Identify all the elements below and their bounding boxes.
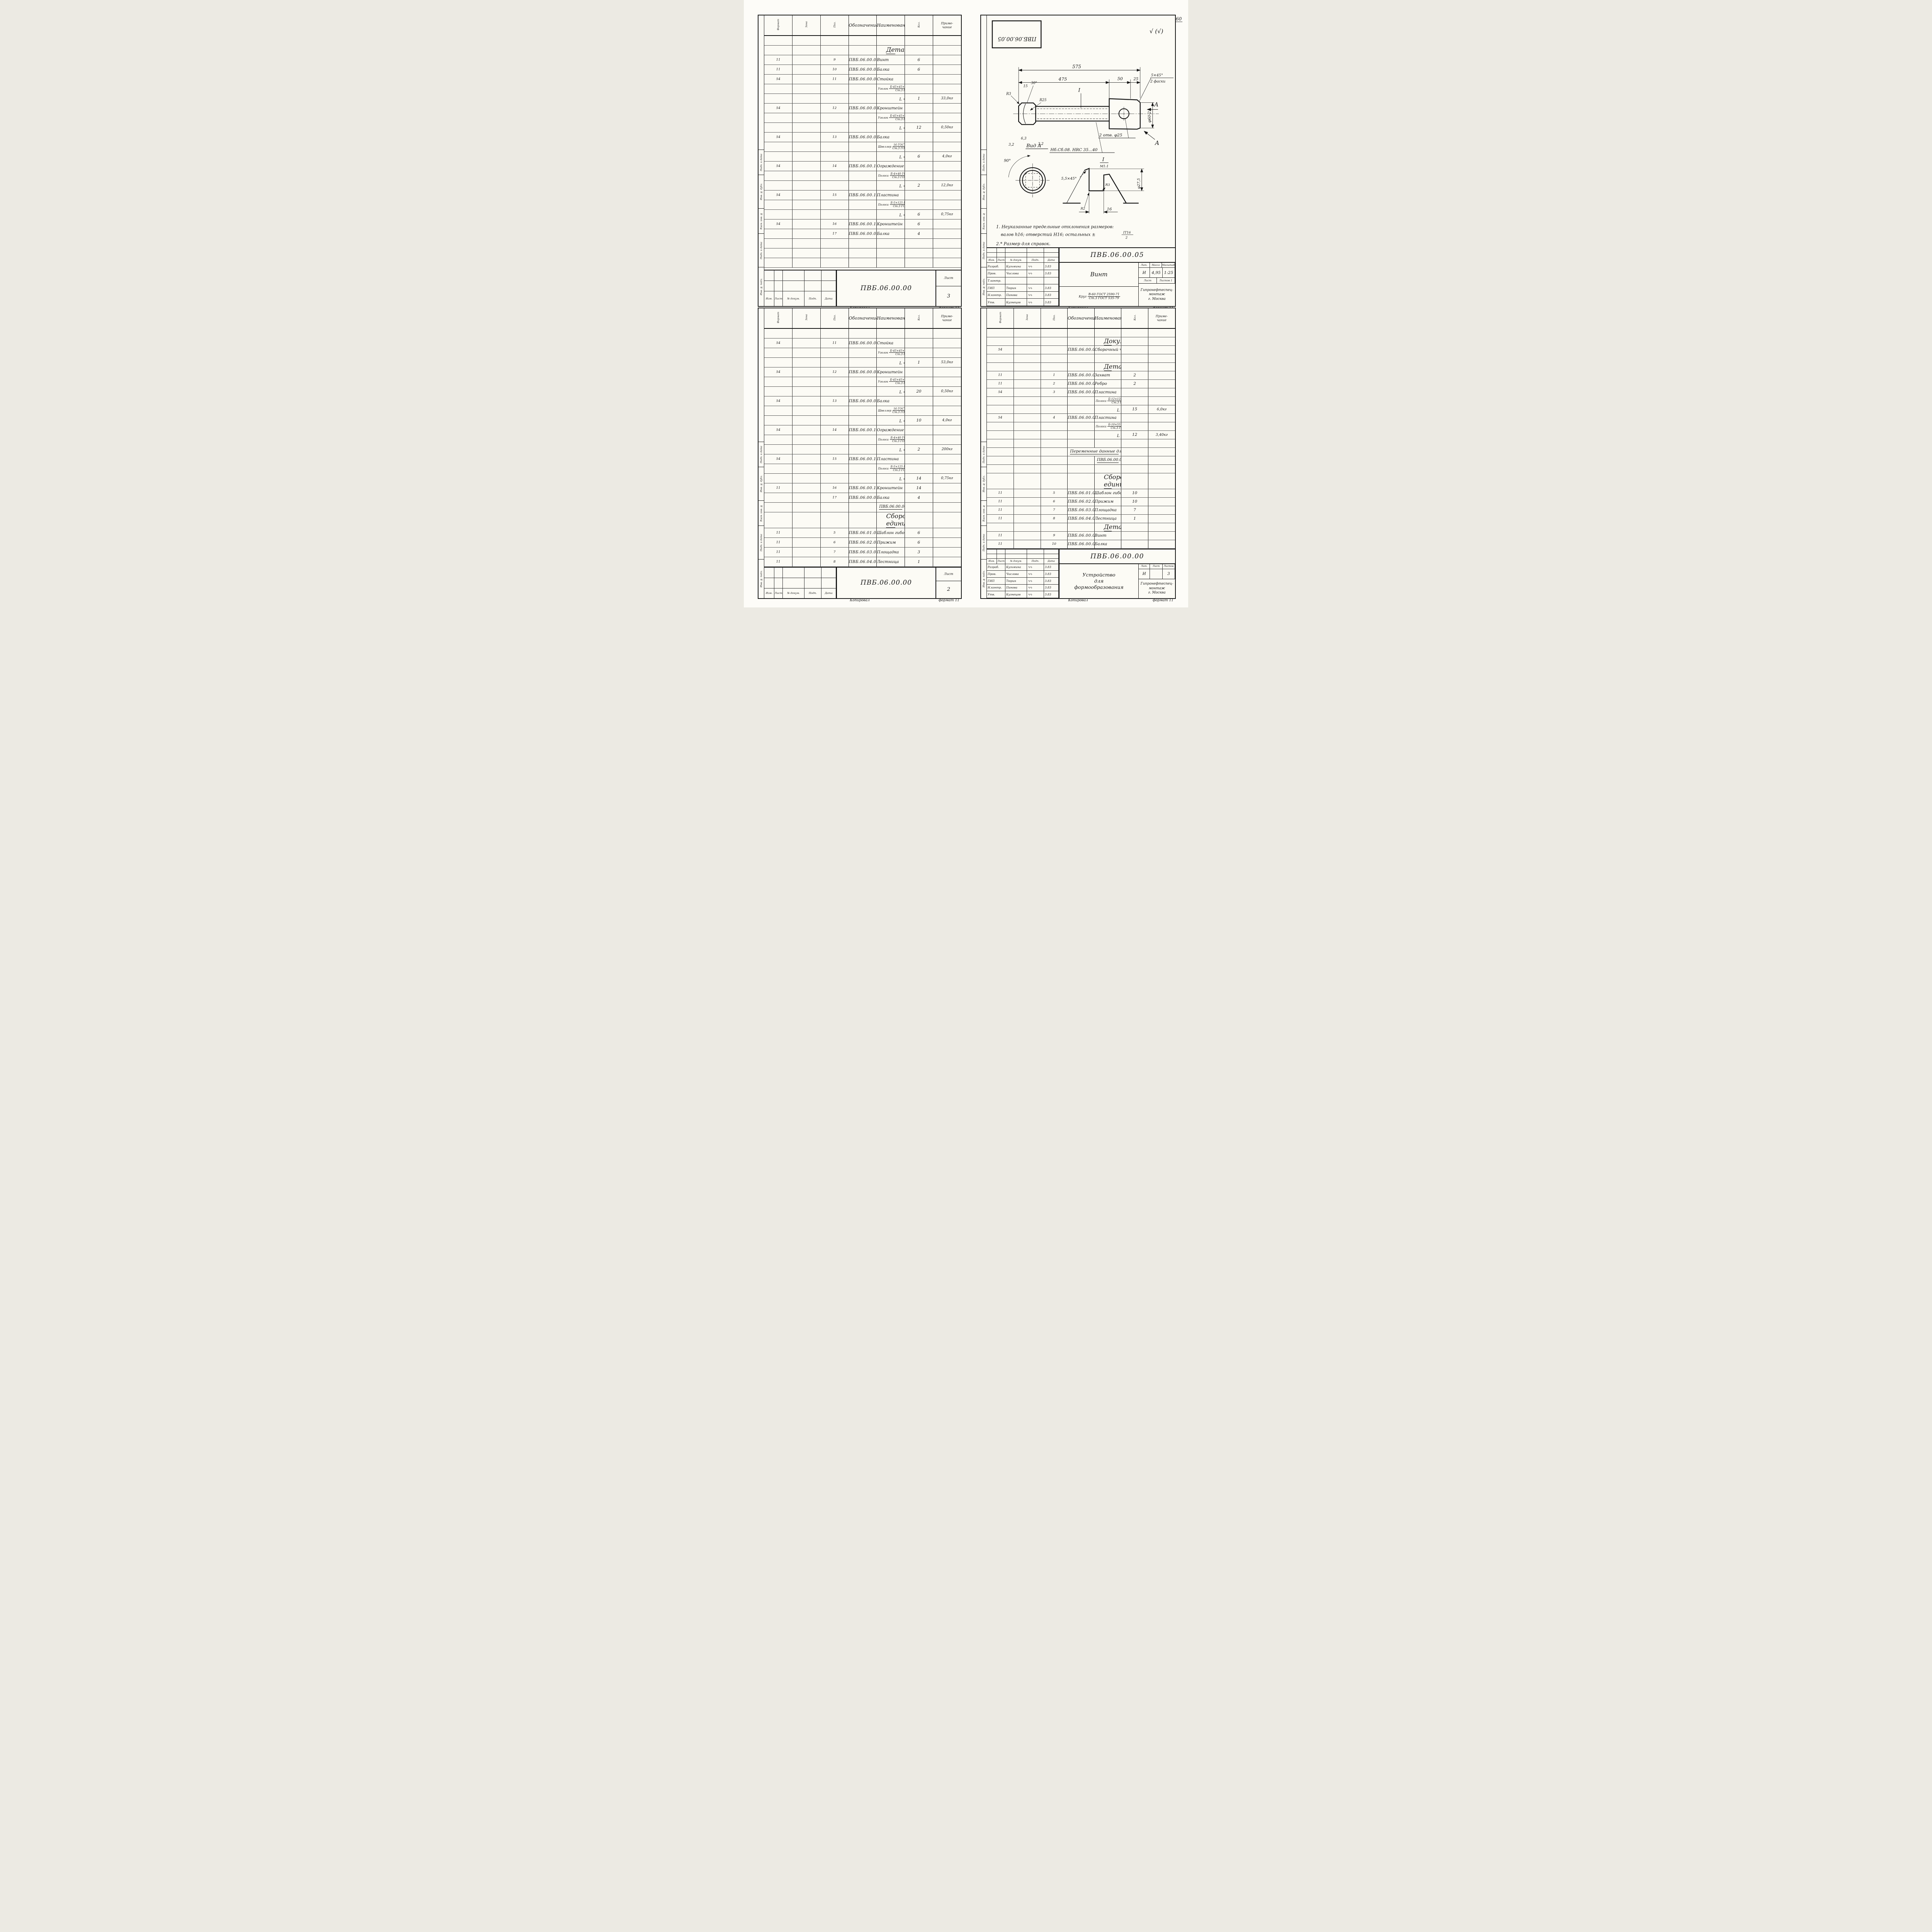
title-block-header-row: Изм.Лист№ докум.Подп.Дата	[987, 257, 1059, 263]
label-r2: R2	[1080, 207, 1085, 211]
cell-note	[933, 328, 961, 338]
spec-row: 5415ПВБ.06.00.11Пластина	[764, 454, 961, 464]
cell-pos: 15	[820, 454, 849, 464]
cell-pos: 8	[820, 557, 849, 566]
section-heading: Сборочные единицы	[1104, 473, 1112, 489]
margin-stamp-label: Подп. и дата	[760, 446, 763, 463]
cell-designation	[849, 406, 877, 415]
column-header-c5 bt: Кол.	[1121, 308, 1148, 328]
cell-format: 54	[764, 132, 793, 142]
material-fraction: Б-10×55 ГОСТ 103-76Ст.3 ГОСТ 535-79	[1107, 423, 1121, 430]
cell-zone	[793, 473, 821, 483]
margin-stamp-cell: Инв. № дубл.	[759, 467, 764, 500]
holes-note: 2 отв. φ25	[1099, 133, 1122, 138]
cell-designation	[849, 113, 877, 122]
margin-stamp-label: Взам. инв. №	[760, 213, 763, 230]
cell-name: Сборочные единицы	[1094, 473, 1121, 489]
lit-mass-scale-headers: Лит.МассаМасштаб	[1139, 263, 1175, 268]
material-fraction: Б-45×45×5 ГОСТ 8509-72Ст.3 ГОСТ 535-79	[889, 349, 905, 356]
length-value: L = 150	[877, 390, 905, 395]
cell-note	[1148, 531, 1175, 540]
cell-format: 11	[764, 55, 793, 65]
cell-name: Кронштейн	[877, 483, 905, 493]
column-header-name: Наименование	[877, 15, 905, 36]
cell-qty	[905, 74, 933, 84]
cell-format	[987, 362, 1014, 371]
column-header-note-line: чание	[933, 26, 961, 29]
material-steel: Ст.3 ГОСТ 535-79	[892, 176, 905, 179]
material-name: Полоса	[878, 174, 888, 177]
cell-zone	[793, 45, 821, 55]
footer-sheet-label: Лист	[936, 568, 961, 581]
revision-grid-cell	[774, 568, 783, 578]
cell-designation	[849, 328, 877, 338]
cell-pos: 10	[820, 65, 849, 74]
margin-stamp-label: Инв. № подл.	[760, 278, 763, 295]
cell-zone	[793, 537, 821, 547]
cell-zone	[1014, 328, 1041, 337]
material-cell: КругВ-60 ГОСТ 2590-71Ст.3 ГОСТ 535-79	[1060, 286, 1138, 306]
cell-pos: 11	[820, 338, 849, 348]
label-90deg: 90°	[1004, 159, 1011, 163]
note-frac-bot: 2	[1125, 236, 1128, 240]
staff-role: ГИП	[987, 578, 1005, 585]
cell-name: УголокБ-45×45×5 ГОСТ 8509-72Ст.3 ГОСТ 53…	[877, 348, 905, 357]
spare-cell	[1027, 253, 1044, 257]
lit-mass-scale-values: И3	[1139, 569, 1175, 579]
cell-note	[933, 528, 961, 537]
spare-cell	[1044, 248, 1059, 253]
cell-note	[933, 258, 961, 267]
cell-name: L = 9720	[877, 94, 905, 103]
cell-note	[933, 502, 961, 512]
spare-cell	[987, 253, 997, 257]
cell-format	[987, 337, 1014, 345]
cell-zone	[1014, 345, 1041, 354]
staff-name: Кузьмина	[1005, 263, 1027, 270]
material-steel: Ст.3 ГОСТ 535-79	[895, 118, 905, 121]
cell-pos: 17	[820, 229, 849, 238]
spec-row: УголокБ-45×45×5 ГОСТ 8509-72Ст.3 ГОСТ 53…	[764, 377, 961, 386]
length-value: L = 150	[877, 213, 905, 218]
margin-stamp-cell: Взам. инв. №	[981, 500, 986, 526]
margin-stamp-label: Инв. № подл.	[760, 570, 763, 587]
material-spec: КругВ-60 ГОСТ 2590-71Ст.3 ГОСТ 535-79	[1078, 293, 1120, 300]
cell-name: L = 150	[877, 122, 905, 132]
cell-designation	[849, 94, 877, 103]
cell-pos: 17	[820, 493, 849, 502]
cell-format	[987, 439, 1014, 447]
cell-format	[764, 444, 793, 454]
cell-qty: 6	[905, 151, 933, 161]
cell-zone	[793, 464, 821, 473]
cell-note: 4,0кг	[933, 415, 961, 425]
spec-row: L = 156702200кг	[764, 444, 961, 454]
cell-pos	[820, 171, 849, 180]
cell-pos: 13	[820, 132, 849, 142]
cell-note	[933, 171, 961, 180]
column-header-label: Зона	[1026, 314, 1029, 320]
cell-zone	[1014, 489, 1041, 497]
page-number: 60	[1175, 16, 1182, 22]
margin-stamp-label: Взам. инв. №	[983, 505, 985, 522]
staff-role: ГИП	[987, 284, 1005, 292]
cell-qty: 14	[905, 483, 933, 493]
cell-note	[1148, 523, 1175, 531]
cell-name: Детали	[1094, 362, 1121, 371]
margin-stamp-cell: Подп. и дата	[981, 150, 986, 175]
cell-pos: 14	[820, 425, 849, 435]
staff-role: Н.контр.	[987, 585, 1005, 592]
cell-designation	[1068, 396, 1095, 405]
spec-row: L = 28064,0кг	[764, 151, 961, 161]
length-value: L = 280	[877, 419, 905, 423]
spec-row: L = 15060,75кг	[764, 209, 961, 219]
column-header-note-line: Приме-	[933, 315, 961, 318]
staff-date: 3.83	[1044, 284, 1059, 292]
cell-format	[764, 84, 793, 94]
title-block-right: ПВБ.06.00.00Устройстводляформообразовани…	[1059, 549, 1175, 599]
cell-note	[933, 132, 961, 142]
cell-zone	[793, 122, 821, 132]
cell-zone	[793, 328, 821, 338]
cell-pos	[820, 435, 849, 444]
cell-pos	[1041, 473, 1068, 489]
cell-qty: 1	[1121, 514, 1148, 523]
cell-format	[987, 447, 1014, 456]
cell-name: Балка	[877, 132, 905, 142]
cell-name: Захват	[1094, 371, 1121, 379]
cell-format: 11	[987, 540, 1014, 548]
material-steel: Ст.3 ГОСТ 535-79	[895, 382, 905, 385]
cell-format	[987, 422, 1014, 430]
cell-qty	[1121, 464, 1148, 473]
cell-name: Пластина	[877, 190, 905, 200]
spare-cell	[1005, 549, 1027, 554]
spec-row: L = 9720133,0кг	[764, 94, 961, 103]
cell-qty	[905, 377, 933, 386]
cell-pos	[820, 180, 849, 190]
cell-pos	[820, 386, 849, 396]
column-header-note-line: Приме-	[1148, 315, 1175, 318]
lms-value: 1:25	[1163, 268, 1175, 278]
cell-qty: 2	[905, 444, 933, 454]
cell-zone	[793, 483, 821, 493]
sheet-label: Лист	[1139, 278, 1157, 284]
lms-header: Лист	[1150, 564, 1162, 569]
margin-stamp-cell: Взам. инв. №	[759, 208, 764, 233]
cell-designation: ПВБ.06.00.06	[1068, 540, 1095, 548]
cell-qty	[905, 103, 933, 113]
cell-format: 54	[764, 454, 793, 464]
cell-name: Лестница	[1094, 514, 1121, 523]
rev-label: Подп.	[1027, 257, 1044, 263]
cell-note	[933, 248, 961, 258]
cell-name	[877, 328, 905, 338]
cell-qty: 6	[905, 528, 933, 537]
cell-designation	[849, 180, 877, 190]
assembly-title-line: формообразования	[1074, 584, 1123, 590]
footer-sheet-number: 2	[936, 581, 961, 598]
margin-stamp-cell: Подп. и дата	[981, 233, 986, 267]
title-block-right: ПВБ.06.00.05ВинтКругВ-60 ГОСТ 2590-71Ст.…	[1059, 248, 1175, 306]
cell-format: 54	[987, 388, 1014, 396]
spec-frame: ФорматЗонаПоз.ОбозначениеНаименованиеКол…	[764, 308, 961, 598]
staff-date: 3.83	[1044, 591, 1059, 598]
cell-note	[933, 338, 961, 348]
cell-name	[877, 36, 905, 45]
cell-zone	[793, 377, 821, 386]
length-value: L = 15120	[877, 361, 905, 366]
cell-pos: 13	[820, 396, 849, 406]
spare-cell	[997, 549, 1005, 554]
cell-qty: 6	[905, 537, 933, 547]
column-header-label: Кол.	[1133, 315, 1136, 320]
revision-grid-cell	[783, 568, 804, 578]
cell-format: 11	[764, 528, 793, 537]
spec-row: 17ПВБ.06.00.06-01Балка4	[764, 493, 961, 502]
cell-zone	[793, 65, 821, 74]
cell-designation: ПВБ.06.00.05	[849, 55, 877, 65]
cell-pos: 16	[820, 483, 849, 493]
cell-variant-heading: Переменные данные для исполнений	[1068, 447, 1121, 456]
margin-stamp-cell: Подп. и дата	[759, 233, 764, 267]
column-header-c5 bt: Кол.	[905, 15, 933, 36]
margin-stamp-cell: Подп. и дата	[759, 526, 764, 559]
column-header-note: Приме-чание	[933, 308, 961, 328]
cell-note	[1148, 514, 1175, 523]
note-2: 2.* Размер для справок.	[996, 241, 1050, 246]
cell-note	[1148, 422, 1175, 430]
cell-pos	[1041, 354, 1068, 362]
cell-note	[933, 238, 961, 248]
cell-pos: 6	[1041, 497, 1068, 506]
cell-pos: 3	[1041, 388, 1068, 396]
cell-designation	[849, 151, 877, 161]
rev-label: Лист	[997, 257, 1005, 263]
cell-zone	[1014, 362, 1041, 371]
staff-role: Т.контр.	[987, 277, 1005, 285]
cell-pos	[1041, 362, 1068, 371]
spec-row: 117ПВБ.06.03.00Площадка3	[764, 547, 961, 557]
cell-name: Ребро	[1094, 379, 1121, 388]
material-name: Полоса	[1096, 399, 1106, 403]
margin-stamp-cell: Инв. № подл.	[759, 267, 764, 306]
revision-grid-cell	[804, 270, 821, 281]
staff-date: 3.83	[1044, 578, 1059, 585]
cell-designation: ПВБ.06.04.00	[1068, 514, 1095, 523]
cell-pos	[820, 464, 849, 473]
cell-designation: ПВБ.06.00.00СБ	[1068, 345, 1095, 354]
cell-qty: 10	[1121, 497, 1148, 506]
view-a-label: Вид А	[1026, 143, 1041, 148]
margin-stamp-label: Подп. и дата	[983, 154, 985, 171]
cell-note	[933, 435, 961, 444]
cell-format: 11	[764, 557, 793, 566]
material-fraction: Б-5×125 ГОСТ 103-76Ст.3 ГОСТ 535-79	[890, 465, 905, 472]
cell-pos	[820, 348, 849, 357]
staff-role: Н.контр.	[987, 292, 1005, 299]
cell-note: 0,50кг	[933, 122, 961, 132]
cell-note	[1148, 464, 1175, 473]
cell-qty	[905, 171, 933, 180]
cell-qty	[1121, 456, 1148, 464]
cell-name: Балка	[877, 229, 905, 238]
cell-designation	[849, 171, 877, 180]
cell-zone	[1014, 430, 1041, 439]
below-frame-labels: Копировал формат 11	[981, 599, 1175, 604]
cell-name	[1094, 354, 1121, 362]
cell-name: L = 450	[1094, 430, 1121, 439]
cell-format	[764, 171, 793, 180]
spec-row: 5411ПВБ.06.00.07-01Стойка	[764, 74, 961, 84]
margin-stamp-strip: Подп. и датаИнв. № дубл.Взам. инв. №Подп…	[981, 15, 987, 306]
section-heading: Документация	[1104, 337, 1112, 345]
title-block-middle: Устройстводляформообразования	[1060, 564, 1138, 599]
cell-format	[987, 473, 1014, 489]
title-block-header-row: Изм.Лист№ докум.Подп.Дата	[987, 559, 1059, 564]
cell-zone	[1014, 447, 1041, 456]
footer-sheet-cell: Лист3	[935, 270, 961, 306]
cell-designation	[849, 348, 877, 357]
cell-format: 11	[987, 497, 1014, 506]
cell-format: 11	[764, 547, 793, 557]
cell-designation: ПВБ.06.00.10	[849, 425, 877, 435]
cell-name: L = 150	[877, 473, 905, 483]
margin-stamp-label: Подп. и дата	[760, 154, 763, 171]
cell-note	[933, 454, 961, 464]
spec-row: Детали	[987, 523, 1175, 531]
cell-note: 0,75кг	[933, 209, 961, 219]
material-fraction: Б-45×45×5 ГОСТ 8509-72Ст.3 ГОСТ 535-79	[889, 85, 905, 92]
rev-label: Лист	[997, 559, 1005, 564]
cell-qty	[1121, 447, 1148, 456]
spec-row: L = 450123,40кг	[987, 430, 1175, 439]
spec-table-body: 5411ПВБ.06.00.07СтойкаУголокБ-45×45×5 ГО…	[764, 328, 961, 566]
rev-label: № докум.	[1005, 257, 1027, 263]
line	[1085, 193, 1089, 207]
cell-qty	[1121, 328, 1148, 337]
cell-format	[764, 377, 793, 386]
revision-grid-cell	[783, 578, 804, 588]
assembly-title-line: для	[1094, 578, 1104, 584]
organization-cell: Гипронефтеспец-монтажг. Москва	[1139, 284, 1175, 306]
margin-stamp-label: Инв. № дубл.	[983, 475, 985, 492]
margin-stamp-cell: Подп. и дата	[981, 442, 986, 467]
margin-stamp-cell: Подп. и дата	[981, 526, 986, 559]
staff-role: Пров.	[987, 270, 1005, 277]
note-1b: валов h16; отверстий Н16; остальных ±	[1001, 232, 1095, 237]
cell-zone	[793, 94, 821, 103]
material-fraction: Б-12×125 ГОСТ 103-76Ст.3 ГОСТ 535-79	[1107, 398, 1121, 404]
margin-stamp-cell: Инв. № дубл.	[981, 467, 986, 500]
spec-row: L = 150140,75кг	[764, 473, 961, 483]
cell-pos	[1041, 345, 1068, 354]
cell-note	[1148, 328, 1175, 337]
dim-25: 25	[1133, 77, 1138, 82]
column-header-label: Зона	[805, 314, 808, 320]
cell-pos	[1041, 328, 1068, 337]
cell-designation: ПВБ.06.00.08	[849, 367, 877, 377]
cell-zone	[1014, 422, 1041, 430]
cell-qty: 3	[905, 547, 933, 557]
cell-qty	[905, 238, 933, 248]
cell-zone	[793, 113, 821, 122]
section-heading: Детали	[1104, 523, 1112, 531]
spec-table-body: Детали119ПВБ.06.00.05Винт61110ПВБ.06.00.…	[764, 36, 961, 267]
assembly-title-cell: Устройстводляформообразования	[1060, 564, 1138, 599]
spec-row: 117ПВБ.06.03.00Площадка7	[987, 506, 1175, 514]
cell-qty: 2	[905, 180, 933, 190]
cell-qty	[905, 132, 933, 142]
cell-qty	[905, 45, 933, 55]
staff-role: Утв.	[987, 299, 1005, 306]
margin-stamp-label: Подп. и дата	[983, 446, 985, 463]
spare-cell	[1005, 248, 1027, 253]
cell-format: 54	[764, 425, 793, 435]
material-spec: УголокБ-45×45×5 ГОСТ 8509-72Ст.3 ГОСТ 53…	[877, 85, 905, 92]
cell-designation	[849, 45, 877, 55]
cell-note: 53,0кг	[933, 357, 961, 367]
cell-note	[1148, 345, 1175, 354]
cell-pos	[1041, 439, 1068, 447]
spec-row: ПолосаБ-10×55 ГОСТ 103-76Ст.3 ГОСТ 535-7…	[987, 422, 1175, 430]
cell-note	[933, 512, 961, 528]
cell-designation	[1068, 523, 1095, 531]
cell-designation	[849, 473, 877, 483]
cell-note: 0,50кг	[933, 386, 961, 396]
cell-note	[1148, 456, 1175, 464]
spec-table-head: ФорматЗонаПоз.ОбозначениеНаименованиеКол…	[764, 15, 961, 36]
spec-row: 118ПВБ.06.04.00Лестница1	[987, 514, 1175, 523]
cell-pos: 9	[1041, 531, 1068, 540]
cell-name: Прижим	[1094, 497, 1121, 506]
cell-pos: 14	[820, 161, 849, 171]
cell-qty: 2	[1121, 371, 1148, 379]
cell-pos	[1041, 523, 1068, 531]
spec-row: L = 150200,50кг	[764, 386, 961, 396]
label-15: 15	[1023, 85, 1028, 88]
cell-name: ПолосаБ-12×125 ГОСТ 103-76Ст.3 ГОСТ 535-…	[1094, 396, 1121, 405]
cell-name: L = 15120	[877, 357, 905, 367]
staff-role: Разраб.	[987, 263, 1005, 270]
cell-qty	[1121, 422, 1148, 430]
cell-zone	[793, 528, 821, 537]
path	[1009, 156, 1030, 177]
cell-name: Кронштейн	[877, 219, 905, 229]
title-block-middle: ВинтКругВ-60 ГОСТ 2590-71Ст.3 ГОСТ 535-7…	[1060, 263, 1138, 306]
cell-format: 54	[987, 345, 1014, 354]
material-spec: ПолосаБ-10×55 ГОСТ 103-76Ст.3 ГОСТ 535-7…	[1095, 423, 1121, 430]
detail-label: I	[1102, 157, 1105, 163]
material-name: Полоса	[1096, 425, 1106, 428]
spec-table: ФорматЗонаПоз.ОбозначениеНаименованиеКол…	[764, 15, 961, 268]
cell-designation: ПВБ.06.00.11	[849, 454, 877, 464]
spare-cell	[987, 248, 997, 253]
staff-date: 3.83	[1044, 585, 1059, 592]
rev-label: Изм.	[987, 257, 997, 263]
cell-format	[764, 151, 793, 161]
title-block-right-stack: Лит.МассаМасштабИ4,951:25Лист Листов 1Ги…	[1138, 263, 1175, 306]
material-name: Полоса	[878, 467, 888, 470]
note-1a: 1. Неуказанные предельные отклонения раз…	[996, 224, 1114, 230]
revision-grid-cell	[764, 568, 774, 578]
cell-zone	[1014, 439, 1041, 447]
cell-pos	[1041, 447, 1068, 456]
cell-qty: 12	[1121, 430, 1148, 439]
staff-name: Кузнецов	[1005, 299, 1027, 306]
organization-line: г. Москва	[1148, 297, 1166, 301]
